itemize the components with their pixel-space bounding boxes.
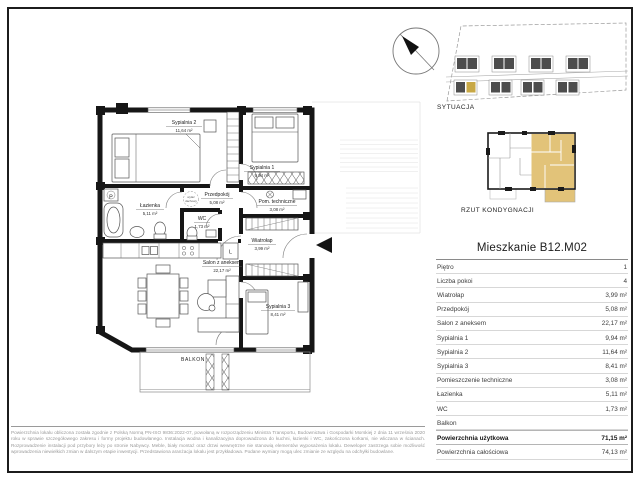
apartment-title: Mieszkanie B12.M02	[436, 242, 628, 260]
room-label-przedpokoj: Przedpokój	[204, 192, 229, 198]
table-row: Wiatrołap3,99 m²	[436, 288, 628, 302]
site-buildings-top-row	[455, 56, 590, 72]
row-value: 71,15 m²	[601, 435, 627, 442]
table-row: Łazienka5,11 m²	[436, 388, 628, 402]
neighbour-unit-outline	[312, 102, 420, 233]
row-value: 1,73 m²	[605, 406, 627, 413]
table-row: Salon z aneksem22,17 m²	[436, 317, 628, 331]
site-building-highlighted	[454, 80, 477, 95]
room-area-przedpokoj: 5,08 m²	[210, 200, 225, 205]
table-row: Powierzchnia użytkowa71,15 m²	[436, 430, 628, 445]
room-area-sypialnia1: 9,94 m²	[255, 173, 270, 178]
highlighted-unit	[467, 82, 476, 93]
bedroom2-bed-icon	[112, 120, 216, 182]
roof-hatch-label-2: dachowy	[185, 199, 197, 203]
site-plan-caption: SYTUACJA	[437, 104, 475, 111]
boiler-icons	[267, 190, 307, 199]
entrance-arrow-icon	[316, 237, 332, 253]
row-value: 3,08 m²	[605, 377, 627, 384]
room-area-salon: 22,17 m²	[213, 268, 231, 273]
row-label: WC	[437, 406, 448, 413]
row-label: Wiatrołap	[437, 292, 464, 299]
table-row: Powierzchnia całościowa74,13 m²	[436, 445, 628, 459]
room-area-sypialnia2: 11,64 m²	[175, 128, 193, 133]
row-value: 5,08 m²	[605, 306, 627, 313]
room-label-sypialnia3: Sypialnia 3	[266, 304, 291, 310]
row-value: 1	[623, 264, 627, 271]
floorplan-sheet: { "colors": { "highlight_gold": "#C8A845…	[0, 0, 640, 480]
room-label-sypialnia2: Sypialnia 2	[172, 120, 197, 126]
room-label-lazienka: Łazienka	[140, 203, 160, 209]
row-label: Salon z aneksem	[437, 320, 486, 327]
key-plan	[486, 131, 576, 202]
apartment-table: Mieszkanie B12.M02 Piętro1Liczba pokoi4W…	[436, 242, 628, 460]
bedroom1-bed-icon	[252, 114, 298, 162]
room-area-sypialnia3: 8,41 m²	[271, 312, 286, 317]
row-value: 22,17 m²	[602, 320, 627, 327]
room-label-sypialnia1: Sypialnia 1	[250, 165, 275, 171]
balcony-label: BALKON	[181, 357, 205, 363]
key-plan-highlighted-unit	[532, 134, 575, 188]
table-row: WC1,73 m²	[436, 402, 628, 416]
disclaimer-text: Powierzchnia lokalu obliczona została zg…	[11, 426, 425, 455]
washer-marker: P	[109, 195, 113, 201]
row-label: Liczba pokoi	[437, 278, 473, 285]
table-row: Przedpokój5,08 m²	[436, 303, 628, 317]
row-label: Pomieszczenie techniczne	[437, 377, 512, 384]
dining-table-icon	[138, 265, 188, 327]
apartment-table-rows: Piętro1Liczba pokoi4Wiatrołap3,99 m²Prze…	[436, 260, 628, 460]
row-label: Piętro	[437, 264, 454, 271]
room-area-lazienka: 5,11 m²	[143, 211, 158, 216]
room-area-wiatrolap: 3,99 m²	[255, 246, 270, 251]
room-label-pom-techniczne: Pom. techniczne	[259, 199, 296, 205]
row-value: 74,13 m²	[602, 449, 627, 456]
table-row: Liczba pokoi4	[436, 274, 628, 288]
row-value: 8,41 m²	[605, 363, 627, 370]
kitchen-counter	[103, 243, 238, 259]
row-value: 5,11 m²	[606, 391, 627, 398]
table-row: Sypialnia 38,41 m²	[436, 359, 628, 373]
row-label: Łazienka	[437, 391, 463, 398]
site-plan	[446, 23, 628, 101]
room-area-pom-techniczne: 3,08 m²	[270, 207, 285, 212]
room-label-wc: WC	[198, 216, 207, 222]
row-value: 4	[623, 278, 627, 285]
key-plan-caption: RZUT KONDYGNACJI	[461, 207, 534, 214]
row-label: Sypialnia 1	[437, 335, 468, 342]
room-label-salon: Salon z aneksem	[203, 260, 241, 266]
row-value: 11,64 m²	[602, 349, 627, 356]
table-row: Sypialnia 211,64 m²	[436, 345, 628, 359]
row-value: 3,99 m²	[605, 292, 627, 299]
row-value: 9,94 m²	[605, 335, 627, 342]
compass-north-icon	[393, 28, 439, 74]
row-label: Balkon	[437, 420, 457, 427]
floor-plan: wyłaz dachowy BALKON P L Sypialnia 2 11,…	[96, 103, 332, 392]
site-buildings-bottom-row	[454, 80, 579, 95]
table-row: Piętro1	[436, 260, 628, 274]
table-row: Sypialnia 19,94 m²	[436, 331, 628, 345]
table-row: Pomieszczenie techniczne3,08 m²	[436, 374, 628, 388]
row-label: Sypialnia 3	[437, 363, 468, 370]
row-label: Sypialnia 2	[437, 349, 468, 356]
table-row: Balkon	[436, 416, 628, 430]
fridge-marker: L	[229, 250, 232, 256]
row-label: Przedpokój	[437, 306, 469, 313]
roof-hatch: wyłaz dachowy	[184, 192, 199, 207]
sofa-icon	[198, 276, 240, 332]
row-label: Powierzchnia całościowa	[437, 449, 508, 456]
room-label-wiatrolap: Wiatrołap	[251, 238, 272, 244]
row-label: Powierzchnia użytkowa	[437, 435, 508, 442]
balcony: BALKON	[140, 352, 310, 392]
room-area-wc: 1,73 m²	[195, 224, 210, 229]
